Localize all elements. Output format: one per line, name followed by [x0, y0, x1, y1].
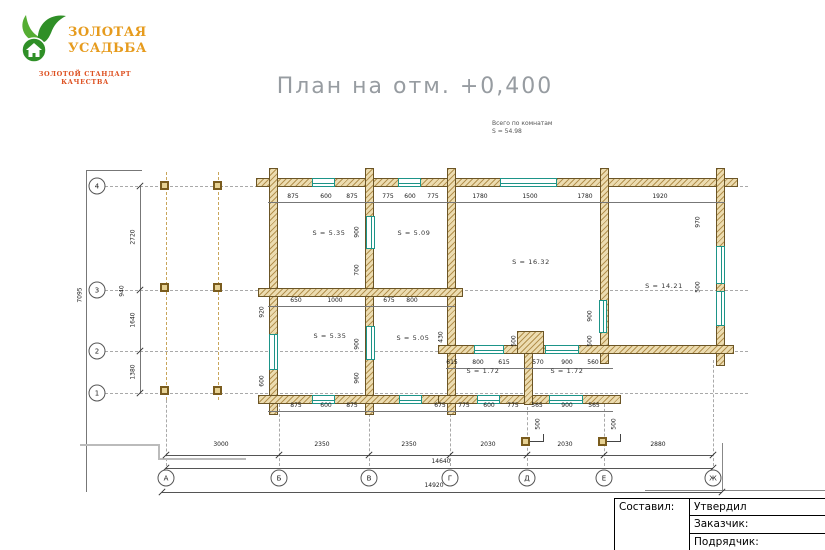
dimension-label: 2030: [557, 441, 572, 448]
title-block-composed-label: Составил:: [615, 499, 690, 550]
dimension-line: [645, 490, 825, 491]
window-symbol: [399, 395, 422, 404]
brand-name-line1: ЗОЛОТАЯ: [68, 25, 147, 40]
dimension-label: 900: [587, 310, 594, 321]
axis-dash-line: [604, 404, 605, 466]
dimension-label: 14920: [424, 482, 443, 489]
dimension-label: 565: [588, 402, 599, 409]
dimension-label: 900: [561, 402, 572, 409]
dimension-label: 560: [587, 359, 598, 366]
dimension-label: 600: [259, 375, 266, 386]
dimension-label: 800: [406, 297, 417, 304]
dimension-line: [268, 411, 613, 412]
dimension-line: [158, 458, 246, 460]
dimension-label: 1780: [577, 193, 592, 200]
dimension-line: [530, 441, 544, 442]
dimension-label: 960: [354, 372, 361, 383]
column-symbol: [213, 386, 222, 395]
dimension-label: 565: [531, 402, 542, 409]
dimension-label: 2720: [130, 229, 137, 244]
axis-marker: Е: [596, 470, 613, 487]
axis-marker: А: [158, 470, 175, 487]
dimension-label: 615: [446, 359, 457, 366]
window-symbol: [398, 178, 421, 187]
window-symbol: [366, 326, 375, 360]
dimension-label: 1920: [652, 193, 667, 200]
axis-marker: В: [361, 470, 378, 487]
dimension-label: 775: [458, 402, 469, 409]
company-logo: ЗОЛОТАЯ УСАДЬБА ЗОЛОТОЙ СТАНДАРТ КАЧЕСТВ…: [14, 12, 164, 86]
room-area-label: S = 5.05: [397, 334, 430, 342]
axis-marker: Д: [519, 470, 536, 487]
axis-dash-line: [90, 393, 748, 394]
dimension-label: 2350: [314, 441, 329, 448]
dimension-label: 1780: [472, 193, 487, 200]
dimension-label: 3000: [213, 441, 228, 448]
dimension-label: 600: [483, 402, 494, 409]
dimension-label: 900: [561, 359, 572, 366]
dimension-label: 500: [587, 335, 594, 346]
dimension-label: 1380: [130, 364, 137, 379]
column-symbol: [160, 181, 169, 190]
dimension-label: 650: [290, 297, 301, 304]
dimension-label: 615: [498, 359, 509, 366]
brand-tagline: ЗОЛОТОЙ СТАНДАРТ КАЧЕСТВА: [14, 70, 156, 86]
window-symbol: [599, 300, 607, 333]
dimension-label: 700: [354, 264, 361, 275]
dimension-label: 970: [695, 216, 702, 227]
dimension-line: [268, 202, 725, 203]
dimension-label: 500: [611, 418, 618, 429]
window-symbol: [716, 291, 725, 326]
dimension-line: [607, 441, 621, 442]
dimension-line: [722, 443, 723, 490]
dimension-label: 675: [383, 297, 394, 304]
column-symbol: [598, 437, 607, 446]
dimension-label: 2880: [650, 441, 665, 448]
window-symbol: [269, 334, 278, 370]
title-block: Составил: Утвердил Заказчик: Подрядчик:: [614, 498, 825, 550]
total-area-note: Всего по комнатам S = 54.98: [492, 120, 552, 136]
axis-dash-line: [166, 400, 167, 466]
wall-segment: [600, 168, 609, 364]
dimension-label: 600: [404, 193, 415, 200]
room-area-label: S = 14.21: [645, 282, 683, 290]
drawing-sheet: ЗОЛОТАЯ УСАДЬБА ЗОЛОТОЙ СТАНДАРТ КАЧЕСТВ…: [0, 0, 825, 550]
dimension-label: 775: [507, 402, 518, 409]
dimension-label: 900: [354, 338, 361, 349]
axis-dash-line: [713, 360, 714, 466]
title-block-customer-label: Заказчик:: [690, 516, 825, 533]
room-area-label: S = 1.72: [551, 367, 584, 375]
dimension-line: [543, 434, 544, 442]
room-area-label: S = 1.72: [467, 367, 500, 375]
axis-marker: Ж: [705, 470, 722, 487]
title-block-approved-label: Утвердил: [690, 499, 825, 516]
dimension-line: [620, 434, 621, 442]
window-symbol: [500, 178, 557, 187]
window-symbol: [366, 216, 375, 249]
window-symbol: [474, 345, 504, 354]
title-block-contractor-label: Подрядчик:: [690, 534, 825, 550]
column-symbol: [213, 283, 222, 292]
dimension-label: 600: [320, 193, 331, 200]
dimension-label: 1000: [327, 297, 342, 304]
dimension-line: [162, 492, 722, 493]
dimension-label: 900: [354, 226, 361, 237]
dimension-label: 2350: [401, 441, 416, 448]
dimension-label: 775: [382, 193, 393, 200]
dimension-label: 940: [119, 285, 126, 296]
room-area-label: S = 5.35: [314, 332, 347, 340]
dimension-label: 800: [472, 359, 483, 366]
drawing-title: План на отм. +0,400: [277, 74, 554, 99]
dimension-line: [80, 444, 160, 446]
window-symbol: [545, 345, 579, 354]
dimension-label: 500: [695, 281, 702, 292]
dimension-label: 14640: [431, 458, 450, 465]
dimension-line: [166, 455, 713, 456]
dimension-label: 500: [511, 335, 518, 346]
column-symbol: [160, 283, 169, 292]
wall-segment: [517, 331, 544, 354]
window-symbol: [716, 246, 725, 284]
dimension-label: 875: [290, 402, 301, 409]
dimension-label: 1500: [522, 193, 537, 200]
dimension-label: 600: [320, 402, 331, 409]
dimension-label: 500: [535, 418, 542, 429]
dimension-line: [166, 468, 713, 469]
dimension-line: [86, 170, 142, 171]
dimension-label: 1640: [130, 312, 137, 327]
dimension-label: 875: [346, 193, 357, 200]
axis-marker: Б: [271, 470, 288, 487]
leaf-house-logo-icon: [14, 12, 66, 68]
dimension-label: 875: [346, 402, 357, 409]
dimension-label: 570: [532, 359, 543, 366]
axis-marker: 4: [89, 178, 106, 195]
room-area-label: S = 16.32: [512, 258, 550, 266]
room-area-label: S = 5.09: [398, 229, 431, 237]
column-symbol: [521, 437, 530, 446]
axis-marker: 2: [89, 343, 106, 360]
dimension-line: [268, 306, 455, 307]
dimension-label: 920: [259, 306, 266, 317]
dimension-label: 430: [438, 331, 445, 342]
total-area-note-line1: Всего по комнатам: [492, 120, 552, 128]
column-symbol: [160, 386, 169, 395]
brand-name-line2: УСАДЬБА: [68, 41, 147, 56]
wall-segment: [258, 395, 463, 404]
room-area-label: S = 5.35: [313, 229, 346, 237]
dimension-label: 2030: [480, 441, 495, 448]
window-symbol: [312, 178, 335, 187]
axis-marker: 3: [89, 282, 106, 299]
total-area-note-line2: S = 54.98: [492, 128, 552, 136]
dimension-label: 675: [434, 402, 445, 409]
dimension-label: 7095: [77, 287, 84, 302]
axis-marker: Г: [442, 470, 459, 487]
axis-dash-line: [279, 404, 280, 466]
dimension-label: 875: [287, 193, 298, 200]
column-symbol: [213, 181, 222, 190]
axis-marker: 1: [89, 385, 106, 402]
dimension-label: 775: [427, 193, 438, 200]
wall-segment: [258, 288, 463, 297]
